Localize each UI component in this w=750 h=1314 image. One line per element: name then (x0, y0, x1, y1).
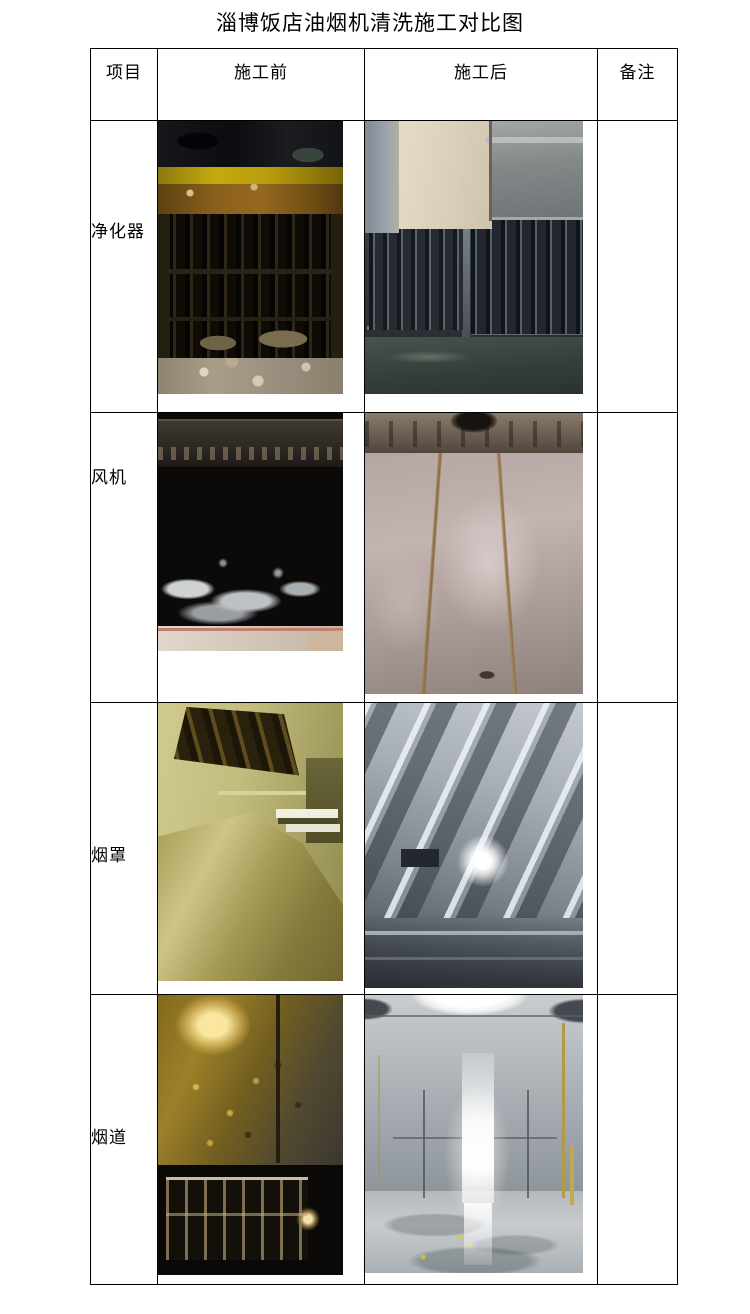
hood-before-cell (158, 703, 365, 995)
table-row-duct: 烟道 (91, 995, 678, 1285)
duct-before-photo (158, 995, 343, 1275)
table-row-hood: 烟罩 (91, 703, 678, 995)
fan-before-photo (158, 413, 343, 651)
fan-after-photo (365, 413, 583, 694)
duct-after-cell (365, 995, 598, 1285)
header-after: 施工后 (365, 49, 598, 121)
purifier-after-cell (365, 121, 598, 413)
row-label-duct: 烟道 (91, 995, 158, 1285)
table-row-fan: 风机 (91, 413, 678, 703)
header-item: 项目 (91, 49, 158, 121)
hood-remark-cell (598, 703, 678, 995)
row-label-purifier: 净化器 (91, 121, 158, 413)
row-label-fan: 风机 (91, 413, 158, 703)
duct-remark-cell (598, 995, 678, 1285)
fan-remark-cell (598, 413, 678, 703)
fan-before-cell (158, 413, 365, 703)
header-row: 项目 施工前 施工后 备注 (91, 49, 678, 121)
hood-before-photo (158, 703, 343, 981)
purifier-before-cell (158, 121, 365, 413)
purifier-remark-cell (598, 121, 678, 413)
purifier-after-photo (365, 121, 583, 394)
duct-after-photo (365, 995, 583, 1273)
hood-after-photo (365, 703, 583, 988)
duct-before-cell (158, 995, 365, 1285)
table-row-purifier: 净化器 (91, 121, 678, 413)
comparison-table: 项目 施工前 施工后 备注 净化器 风机 烟罩 (90, 48, 678, 1285)
hood-after-cell (365, 703, 598, 995)
page-title: 淄博饭店油烟机清洗施工对比图 (0, 10, 750, 36)
row-label-hood: 烟罩 (91, 703, 158, 995)
purifier-before-photo (158, 121, 343, 394)
header-before: 施工前 (158, 49, 365, 121)
fan-after-cell (365, 413, 598, 703)
header-remark: 备注 (598, 49, 678, 121)
